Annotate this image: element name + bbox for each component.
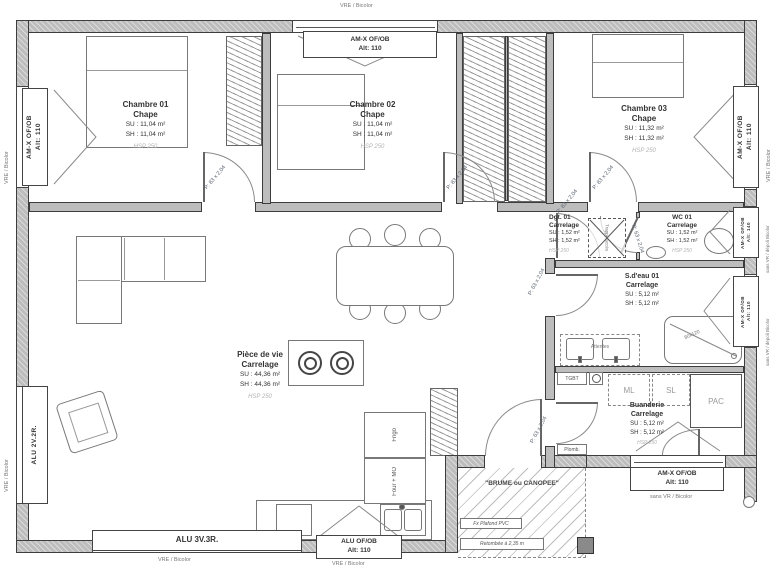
room-su: SU : 11,04 m² [315,120,430,130]
window-sill: Alt: 110 [358,45,381,54]
wardrobe-chambre-03 [508,36,546,202]
room-sh: SH : 11,04 m² [315,130,430,140]
door-size-label: P: 63 x 2,04 [527,268,546,297]
room-label-chambre-03: Chambre 03 Chape SU : 11,32 m² SH : 11,3… [588,104,700,154]
door-leaf-sdeau [556,274,598,276]
porch-post [577,537,594,554]
room-name: Dgt. 01 [549,214,597,222]
finish-label-bottom-buanderie: sans VR / Bicolor [650,494,692,500]
door-swing-chambre-03 [589,152,637,202]
window-label-bottom-bay: ALU 3V.3R. [92,530,302,551]
wall-porch-west [445,455,458,553]
room-sh: SH : 5,12 m² [596,300,688,309]
bed-chambre-03 [592,34,684,98]
sink-bowl [404,509,422,531]
finish-label-bottom-bay: VRE / Bicolor [158,557,191,563]
room-name: Buanderie [602,402,692,411]
room-sh: SH : 11,04 m² [88,130,203,140]
room-label-chambre-02: Chambre 02 Chape SU : 11,04 m² SH : 11,0… [315,100,430,150]
window-label-right-sdeau: AM-X OF/OBAlt: 110 [733,276,759,347]
room-name: WC 01 [648,214,716,222]
room-label-piece-de-vie: Pièce de vie Carrelage SU : 44,36 m² SH … [210,350,310,400]
window-sill: Alt: 110 [35,123,44,150]
blanket-line [87,70,187,71]
room-hsp: HSP 250 [88,144,203,150]
window-label-bottom-kitchen: ALU OF/OBAlt: 110 [316,535,402,559]
room-floor: Carrelage [549,222,597,230]
iwall-living-b [545,316,555,400]
finish-label-right-ch3: VRE / Bicolor [766,98,772,182]
window-ref: AM-X OF/OB [658,470,697,479]
room-hsp: HSP 250 [549,248,597,254]
porch-drop-label: Retombée à 2,35 m [460,538,544,550]
armchair [55,390,119,455]
meter-dial [592,374,601,383]
attic-hatch-label: Trappe accès [605,224,610,251]
room-su: SU : 5,12 m² [602,420,692,429]
armchair-seat [68,402,108,442]
room-su: SU : 5,12 m² [596,291,688,300]
electrical-panel: TGBT [557,372,587,385]
door-leaf-buanderie [556,402,598,404]
iwall-ch1-ch2 [262,33,271,204]
finish-label-left-ch1: VRE / Bicolor [4,96,10,184]
tap [614,356,618,363]
dining-table [336,246,454,306]
finish-label-right-wc: sans VR / dépoli Bicolor [765,185,770,273]
window-ref: ALU 2V.2R. [31,425,40,464]
room-name: Chambre 02 [315,100,430,110]
window-sill: Alt: 110 [746,301,752,321]
room-hsp: HSP 250 [315,144,430,150]
room-floor: Carrelage [210,360,310,370]
room-floor: Carrelage [602,411,692,420]
sofa-cushion-line [164,238,165,280]
room-su: SU : 11,32 m² [588,124,700,134]
sofa-cushion-line [124,238,125,280]
iwall-living-c [545,446,555,468]
window-label-left-ch1: AM-X OF/OBAlt: 110 [22,88,48,186]
window-ref: AM-X OF/OB [737,115,746,159]
finish-label-bottom-kitchen: VRE / Bicolor [332,561,365,567]
room-hsp: HSP 250 [210,394,310,400]
iwall-wardrobe-right [546,33,554,204]
room-sh: SH : 5,12 m² [602,429,692,438]
room-name: Chambre 03 [588,104,700,114]
window-ref: AM-X OF/OB [26,115,35,159]
window-ref: AM-X OF/OB [351,36,390,45]
room-hsp: HSP 250 [602,440,692,446]
door-leaf-chambre-02 [443,152,445,202]
door-leaf-chambre-01 [203,152,205,202]
blanket-line [593,62,683,63]
room-sh: SH : 44,36 m² [210,380,310,390]
sofa-cushion-line [78,280,120,281]
window-sill: Alt: 110 [746,123,755,150]
room-floor: Chape [315,110,430,120]
room-label-chambre-01: Chambre 01 Chape SU : 11,04 m² SH : 11,0… [88,100,203,150]
iwall-bedrooms-b [255,202,442,212]
window-sill: Alt: 110 [347,547,370,556]
window-label-right-ch3: AM-X OF/OBAlt: 110 [733,86,759,188]
window-label-bottom-buanderie: AM-X OF/OBAlt: 110 [630,467,724,491]
glazing [296,27,435,28]
room-su: SU : 1,52 m² [549,230,597,238]
window-ref: ALU 3V.3R. [176,535,218,546]
door-swing-entrance [485,399,542,456]
glazing [634,462,723,463]
window-label-left-living: ALU 2V.2R. [22,386,48,504]
room-sh: SH : 1,52 m² [648,238,716,246]
finish-label-left-living: VRE / Bicolor [4,400,10,492]
room-floor: Carrelage [648,222,716,230]
iwall-living-a [545,258,555,274]
room-name: S.d'eau 01 [596,273,688,282]
door-leaf-buanderie-ext [698,429,700,455]
oven-micro-label: Four + MO [392,467,398,496]
window-sill: Alt: 110 [665,479,688,488]
room-label-sdeau-01: S.d'eau 01 Carrelage SU : 5,12 m² SH : 5… [596,273,688,309]
room-floor: Carrelage [596,282,688,291]
room-su: SU : 1,52 m² [648,230,716,238]
dining-chair [384,224,406,246]
room-name: Pièce de vie [210,350,310,360]
shower-glass-line [664,316,742,364]
fridge-label: Frigo [392,428,398,442]
porch-title: "BRUME ou CANOPEE" [460,480,584,487]
room-sh: SH : 11,32 m² [588,134,700,144]
vanity-label: Attentes [560,344,640,350]
room-label-buanderie: Buanderie Carrelage SU : 5,12 m² SH : 5,… [602,402,692,446]
tall-unit-oven-micro: Four + MO [364,458,426,504]
room-floor: Chape [88,110,203,120]
window-ref: ALU OF/OB [341,538,377,547]
iwall-bedrooms-c [497,202,588,212]
finish-label-top: VRE / Bicolor [340,3,373,9]
iwall-bedrooms-a [29,202,202,212]
door-swing-buanderie [556,402,598,444]
porch-ceiling-label: Fx Plafond PVC [460,518,522,529]
room-label-dgt-01: Dgt. 01 Carrelage SU : 1,52 m² SH : 1,52… [549,214,597,254]
room-su: SU : 44,36 m² [210,370,310,380]
floor-plan: AM-X OF/OBAlt: 110 AM-X OF/OBAlt: 110 AL… [0,0,783,578]
room-label-wc-01: WC 01 Carrelage SU : 1,52 m² SH : 1,52 m… [648,214,716,254]
room-name: Chambre 01 [88,100,203,110]
room-sh: SH : 1,52 m² [549,238,597,246]
window-label-right-wc: AM-X OF/OBAlt: 140 [733,207,759,258]
window-label-top-ch2: AM-X OF/OBAlt: 110 [303,31,437,58]
plumbing-box: Plomb. [557,444,587,455]
wardrobe-chambre-01 [226,36,262,146]
room-floor: Chape [588,114,700,124]
island-burner [330,351,354,375]
iwall-wardrobe-divider [505,36,508,201]
room-hsp: HSP 250 [588,148,700,154]
tall-unit-fridge: Frigo [364,412,426,458]
iwall-dgt-sdeau [555,260,744,268]
kitchen-larder-hatch [430,388,458,456]
casement-swing-bottom-kitchen [318,504,400,538]
tap [578,356,582,363]
corner-post [743,496,755,508]
meter-box [589,372,603,385]
room-hsp: HSP 250 [648,248,716,254]
door-leaf-chambre-03 [589,152,591,202]
window-sill: Alt: 140 [746,222,752,242]
door-swing-sdeau [556,274,598,316]
room-su: SU : 11,04 m² [88,120,203,130]
finish-label-right-sdeau: sans VR / dépoli Bicolor [765,278,770,366]
